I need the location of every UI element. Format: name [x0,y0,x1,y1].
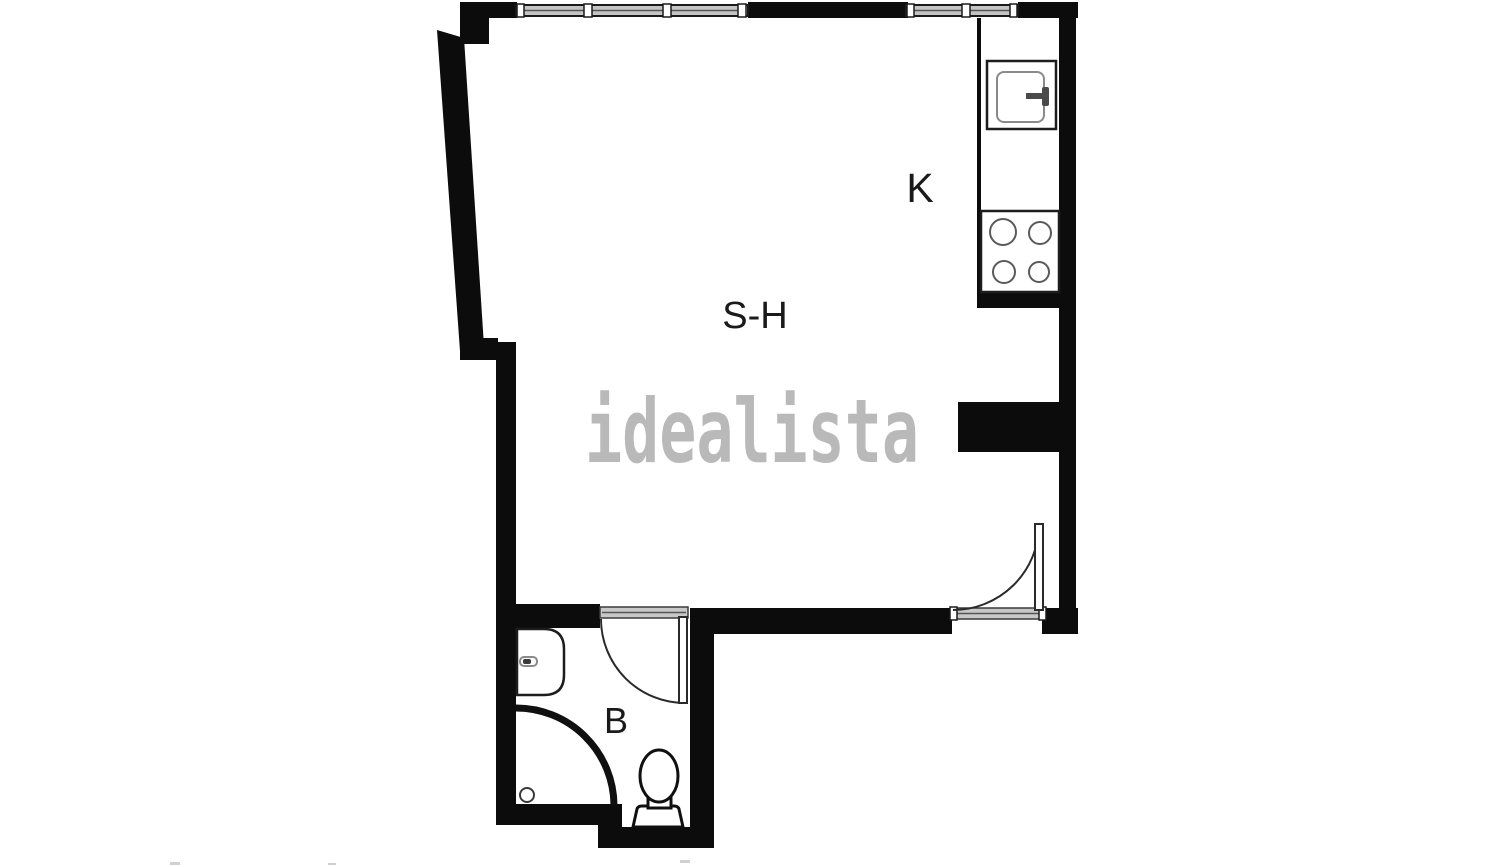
window-b-post-3 [1010,4,1017,17]
toilet-icon [633,750,683,827]
bathroom-faucet-dot [523,659,531,664]
wall-bottom-middle [690,608,952,634]
kitchen-faucet-handle [1042,87,1049,106]
entrance-door-arc [953,526,1039,610]
wall-bathroom-right [690,616,714,848]
wall-left-diagonal [437,30,484,351]
window-icon [906,4,1018,17]
bathroom-door-leaf [679,617,687,703]
drain-icon [520,788,534,802]
stove-icon [981,211,1059,292]
window-a-post-2 [584,4,592,17]
artifact-mark [328,863,336,865]
entrance-door-icon [950,524,1046,620]
room-label-bathroom: B [604,700,628,741]
window-a-post-3 [663,4,671,17]
wall-top-middle [748,2,908,18]
window-a-post-4 [738,4,746,17]
room-label-salon: S-H [722,295,787,337]
wall-left-vertical [496,342,516,825]
room-label-kitchen: K [906,165,933,211]
bathroom-door-icon [600,607,688,703]
artifact-mark [680,860,690,863]
wall-right [1059,2,1076,634]
kitchen-sink-icon [987,61,1056,129]
watermark-logo: idealista [585,380,919,483]
floorplan-image: idealista S-H K B [0,0,1500,867]
bathroom-door-arc [601,619,685,703]
window-b-post-1 [907,4,914,17]
wall-top-left-stub [460,16,489,44]
floorplan-svg: idealista S-H K B [0,0,1500,867]
shower-icon [516,708,614,805]
toilet-bowl [640,750,678,802]
wall-bathroom-bottom-right [598,827,714,848]
wall-top-left-corner [460,2,517,18]
window-icon [516,4,748,17]
entrance-threshold-cap-left [950,607,957,620]
bathroom-fixtures [516,629,683,827]
entrance-door-leaf [1035,524,1043,610]
wall-bottom-right-corner [1042,608,1078,634]
window-a-post-1 [517,4,524,17]
bottom-artifacts [170,860,690,865]
wall-bathroom-top [498,604,600,628]
kitchen-counter-end [981,292,1059,308]
wall-left-step [460,338,498,360]
wall-notch [958,402,1061,452]
kitchen-fixtures [981,61,1059,292]
artifact-mark [170,862,180,865]
window-b-post-2 [962,4,970,17]
